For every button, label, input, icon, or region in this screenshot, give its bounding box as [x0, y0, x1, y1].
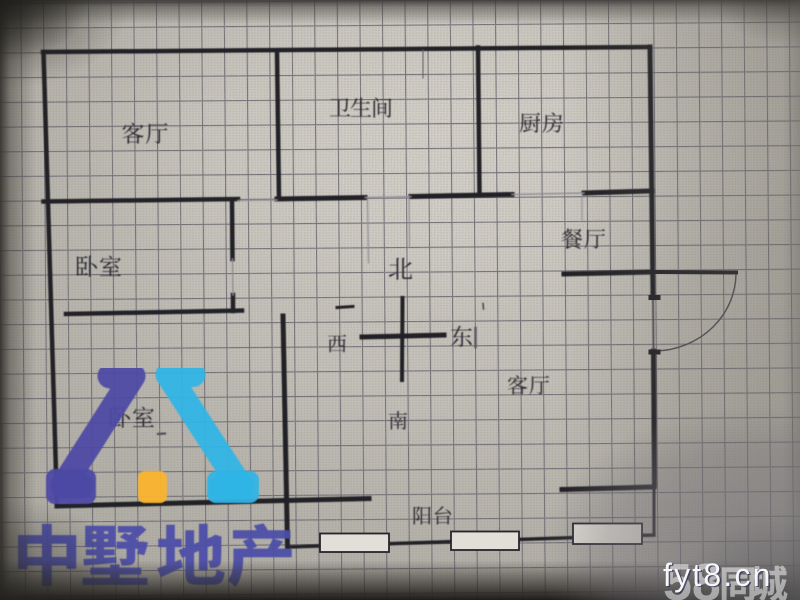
svg-text:fyt8.cn: fyt8.cn: [663, 557, 773, 593]
